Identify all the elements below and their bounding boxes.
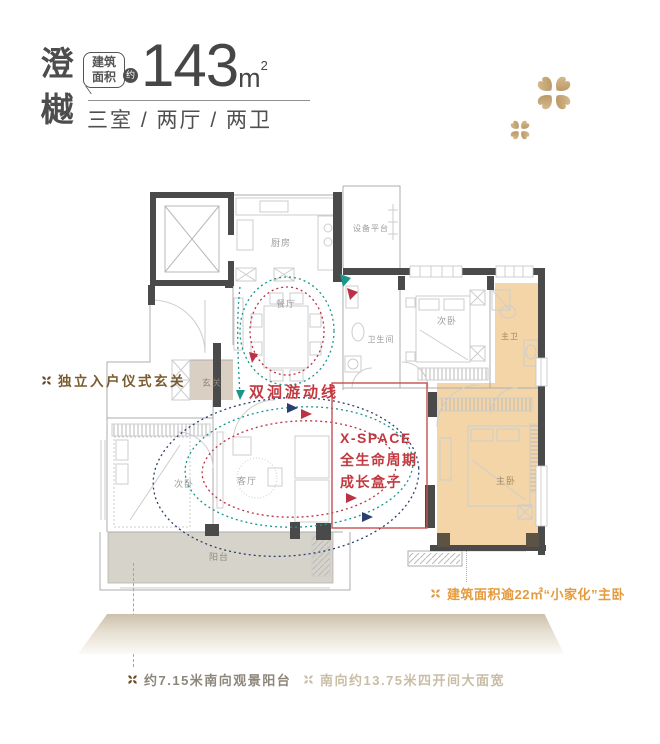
annotation-foyer: 独立入户仪式玄关 [40, 370, 186, 390]
annotation-master-text: 建筑面积逾22㎡“小家化”主卧 [447, 584, 625, 603]
podium-shadow [78, 614, 564, 654]
floorplan-page: 澄樾 建筑 面积 约 143m2 三室 / 两厅 / 两卫 [0, 0, 660, 744]
annotation-bay-width: 南向约13.75米四开间大面宽 [302, 670, 505, 689]
room-label-dining: 餐厅 [276, 298, 296, 309]
room-label-living: 客厅 [237, 475, 257, 486]
ac-platform [409, 553, 460, 564]
room-label-master: 主卧 [496, 475, 516, 486]
elevator [153, 195, 236, 283]
xspace-label: X-SPACE 全生命周期 成长盒子 [339, 430, 418, 490]
room-label-kitchen: 厨房 [271, 237, 291, 248]
petal-cross-icon [302, 673, 315, 686]
petal-cross-icon [429, 587, 442, 600]
petal-cross-icon [40, 374, 53, 387]
xspace-line1: X-SPACE [340, 430, 412, 446]
circulation-label: 双洄游动线 [249, 383, 339, 401]
xspace-line3: 成长盒子 [340, 474, 402, 490]
room-label-bathroom: 卫生间 [368, 334, 395, 344]
master-leader-line [466, 551, 467, 582]
petal-cross-icon [126, 673, 139, 686]
circulation-loops [148, 277, 424, 565]
room-label-equipment: 设备平台 [353, 223, 389, 233]
room-label-bedroom2: 次卧 [437, 315, 457, 326]
room-label-foyer: 玄关 [202, 377, 222, 388]
annotation-balcony: 约7.15米南向观景阳台 [126, 670, 291, 689]
annotation-balcony-text: 约7.15米南向观景阳台 [144, 670, 291, 689]
annotation-bay-width-text: 南向约13.75米四开间大面宽 [320, 670, 505, 689]
xspace-line2: 全生命周期 [339, 452, 418, 468]
annotation-master: 建筑面积逾22㎡“小家化”主卧 [429, 584, 625, 603]
annotation-foyer-text: 独立入户仪式玄关 [58, 370, 186, 390]
room-label-balcony: 阳台 [209, 551, 229, 562]
room-label-master-bath: 主卫 [501, 331, 519, 341]
room-label-bedroom3: 次卧 [174, 478, 194, 489]
